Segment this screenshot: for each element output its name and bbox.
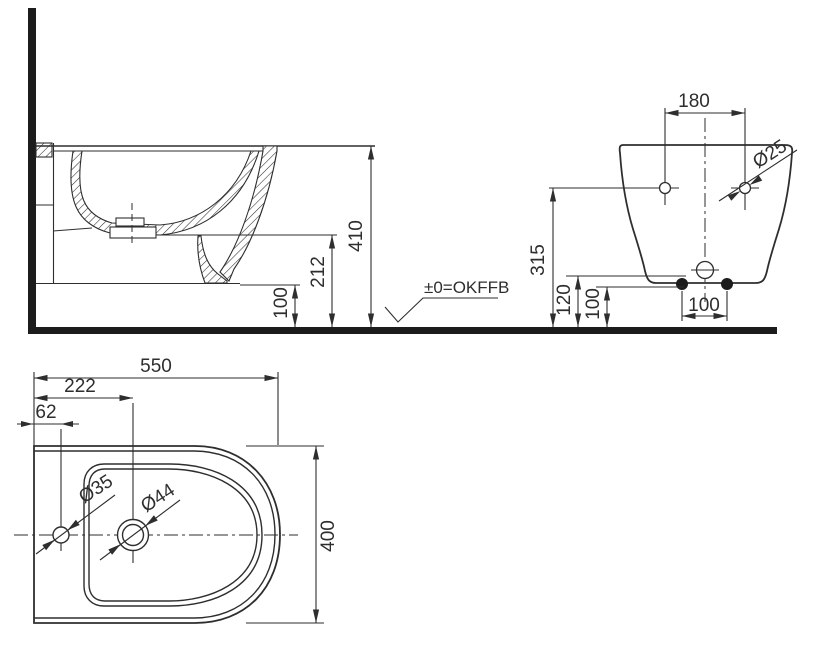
dim-62-arrow-right [61,421,73,427]
bowl-underside-line [53,228,92,231]
dim-label-222: 222 [64,376,96,397]
dim-label-550: 550 [140,356,172,377]
mounting-hole-left [660,183,671,194]
plan-view: Ø35 Ø44 550 222 62 400 [14,356,339,623]
dim-label-100-front: 100 [583,288,604,320]
dim-label-100-side: 100 [271,287,292,319]
dim-label-120: 120 [554,284,575,316]
drain-upper-step [116,218,144,226]
dim-label-315: 315 [528,244,549,276]
floor-level-label: ±0=OKFFB [424,278,509,297]
fixing-dot-right [721,278,733,290]
dim-label-410: 410 [346,220,367,252]
dim-62-arrow-left [21,421,33,427]
drain-lower-step [110,227,156,238]
floor-level-mark: ±0=OKFFB [385,278,509,322]
dim-label-212: 212 [308,256,329,288]
dim-label-400: 400 [318,520,339,552]
front-view: 180 Ø25 315 120 100 100 [528,91,797,327]
floor-line-bar [28,327,777,334]
wall-section-bar [28,8,36,334]
trap-column-section [198,236,227,283]
dim-label-62: 62 [35,402,56,423]
bowl-shell-section [71,151,259,235]
dim-label-100-fixing: 100 [688,295,720,316]
dim-label-180: 180 [678,91,710,112]
bidet-dimension-drawing: 410 212 100 ±0=OKFFB 180 Ø25 [0,0,818,651]
fixing-dot-left [676,278,688,290]
level-mark-leader [385,298,498,322]
technical-drawing-page: 410 212 100 ±0=OKFFB 180 Ø25 [0,0,818,651]
wall-mounting-hatch [36,143,52,157]
